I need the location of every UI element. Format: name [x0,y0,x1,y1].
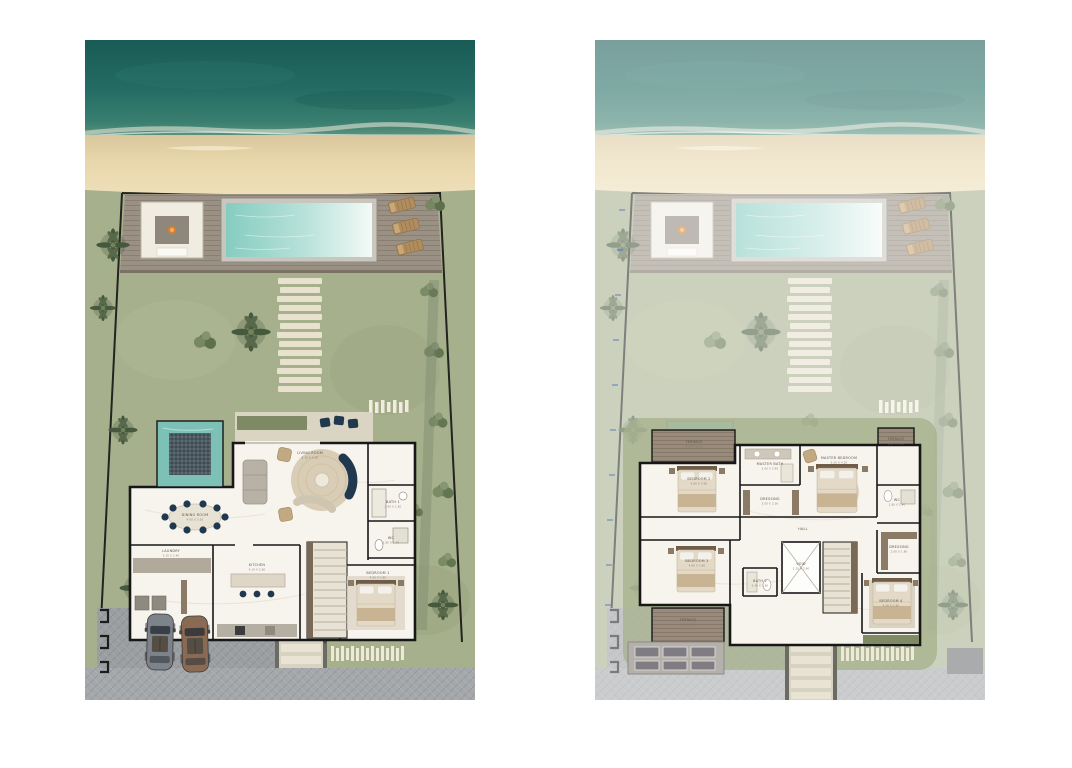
label-bath2: BATH 2 [753,579,767,583]
svg-text:4.60 X 2.00: 4.60 X 2.00 [686,445,703,449]
armchair [278,507,293,522]
svg-text:2.60 X 1.80: 2.60 X 1.80 [891,550,908,554]
label-terrace-sw: TERRACE [678,618,696,622]
label-wc: WC [894,498,901,502]
label-master-bath: MASTER BATH [757,462,784,466]
label-terrace-nw: TERRACE [684,440,702,444]
bronze-car [179,616,211,673]
coffee-table [315,473,329,487]
svg-text:1.80 X 1.40: 1.80 X 1.40 [889,503,906,507]
label-hall: HALL [798,527,808,531]
svg-text:4.60 X 2.20: 4.60 X 2.20 [680,623,697,627]
guest-bedroom [347,576,405,630]
label-void: VOID [796,562,806,566]
label-dining: DINING ROOM [182,513,209,517]
stairs [307,542,347,638]
label-dressing2: DRESSING [889,545,909,549]
label-bedroom1: BEDROOM 1 [366,571,389,575]
gray-car [144,614,176,671]
slat-row [841,646,914,661]
ground-floor-house: LIVING ROOM 6.10 X 5.00 DINING ROOM 4.00… [130,412,415,640]
svg-text:6.10 X 5.00: 6.10 X 5.00 [302,456,319,460]
plans-canvas: LIVING ROOM 6.10 X 5.00 DINING ROOM 4.00… [0,0,1072,768]
svg-text:5.00 X 4.20: 5.00 X 4.20 [831,461,848,465]
svg-text:3.20 X 2.60: 3.20 X 2.60 [793,567,810,571]
label-living: LIVING ROOM [297,451,323,455]
label-wc: WC [388,536,395,540]
first-floor-plan: TERRACE 4.60 X 2.00 TERRACE 3.00 X 2.40 … [595,40,985,700]
svg-text:4.00 X 3.60: 4.00 X 3.60 [370,576,387,580]
svg-text:4.20 X 3.60: 4.20 X 3.60 [883,604,900,608]
label-laundry: LAUNDRY [162,549,181,553]
svg-text:4.10 X 2.60: 4.10 X 2.60 [249,568,266,572]
svg-text:2.40 X 1.80: 2.40 X 1.80 [752,584,769,588]
label-terrace-ne: TERRACE [886,437,904,441]
gray-sofa [243,460,267,504]
dining-table [161,500,228,533]
svg-text:4.60 X 4.00: 4.60 X 4.00 [691,482,708,486]
label-bedroom2: BEDROOM 2 [687,477,710,481]
stairs [823,542,857,613]
svg-text:3.20 X 2.40: 3.20 X 2.40 [163,554,180,558]
svg-text:3.00 X 2.40: 3.00 X 2.40 [762,467,779,471]
label-bath1: BATH 1 [386,500,400,504]
armchair [277,447,292,462]
svg-text:3.00 X 2.00: 3.00 X 2.00 [762,502,779,506]
label-bedroom3: BEDROOM 3 [685,559,708,563]
garage-roof [628,642,724,674]
planter-strip [863,635,919,644]
label-bedroom4: BEDROOM 4 [879,599,902,603]
label-master-bedroom: MASTER BEDROOM [821,456,857,460]
svg-text:3.00 X 2.40: 3.00 X 2.40 [888,442,905,446]
svg-text:1.80 X 1.20: 1.80 X 1.20 [383,541,400,545]
plunge-pool [157,421,223,487]
svg-text:4.00 X 3.20: 4.00 X 3.20 [187,518,204,522]
planter-strip [237,416,307,430]
utility-pad [947,648,983,674]
svg-text:4.60 X 3.80: 4.60 X 3.80 [689,564,706,568]
label-kitchen: KITCHEN [249,563,266,567]
ground-floor-plan: LIVING ROOM 6.10 X 5.00 DINING ROOM 4.00… [85,40,475,700]
label-dressing: DRESSING [760,497,780,501]
svg-text:2.40 X 1.60: 2.40 X 1.60 [385,505,402,509]
page: LIVING ROOM 6.10 X 5.00 DINING ROOM 4.00… [0,0,1072,768]
